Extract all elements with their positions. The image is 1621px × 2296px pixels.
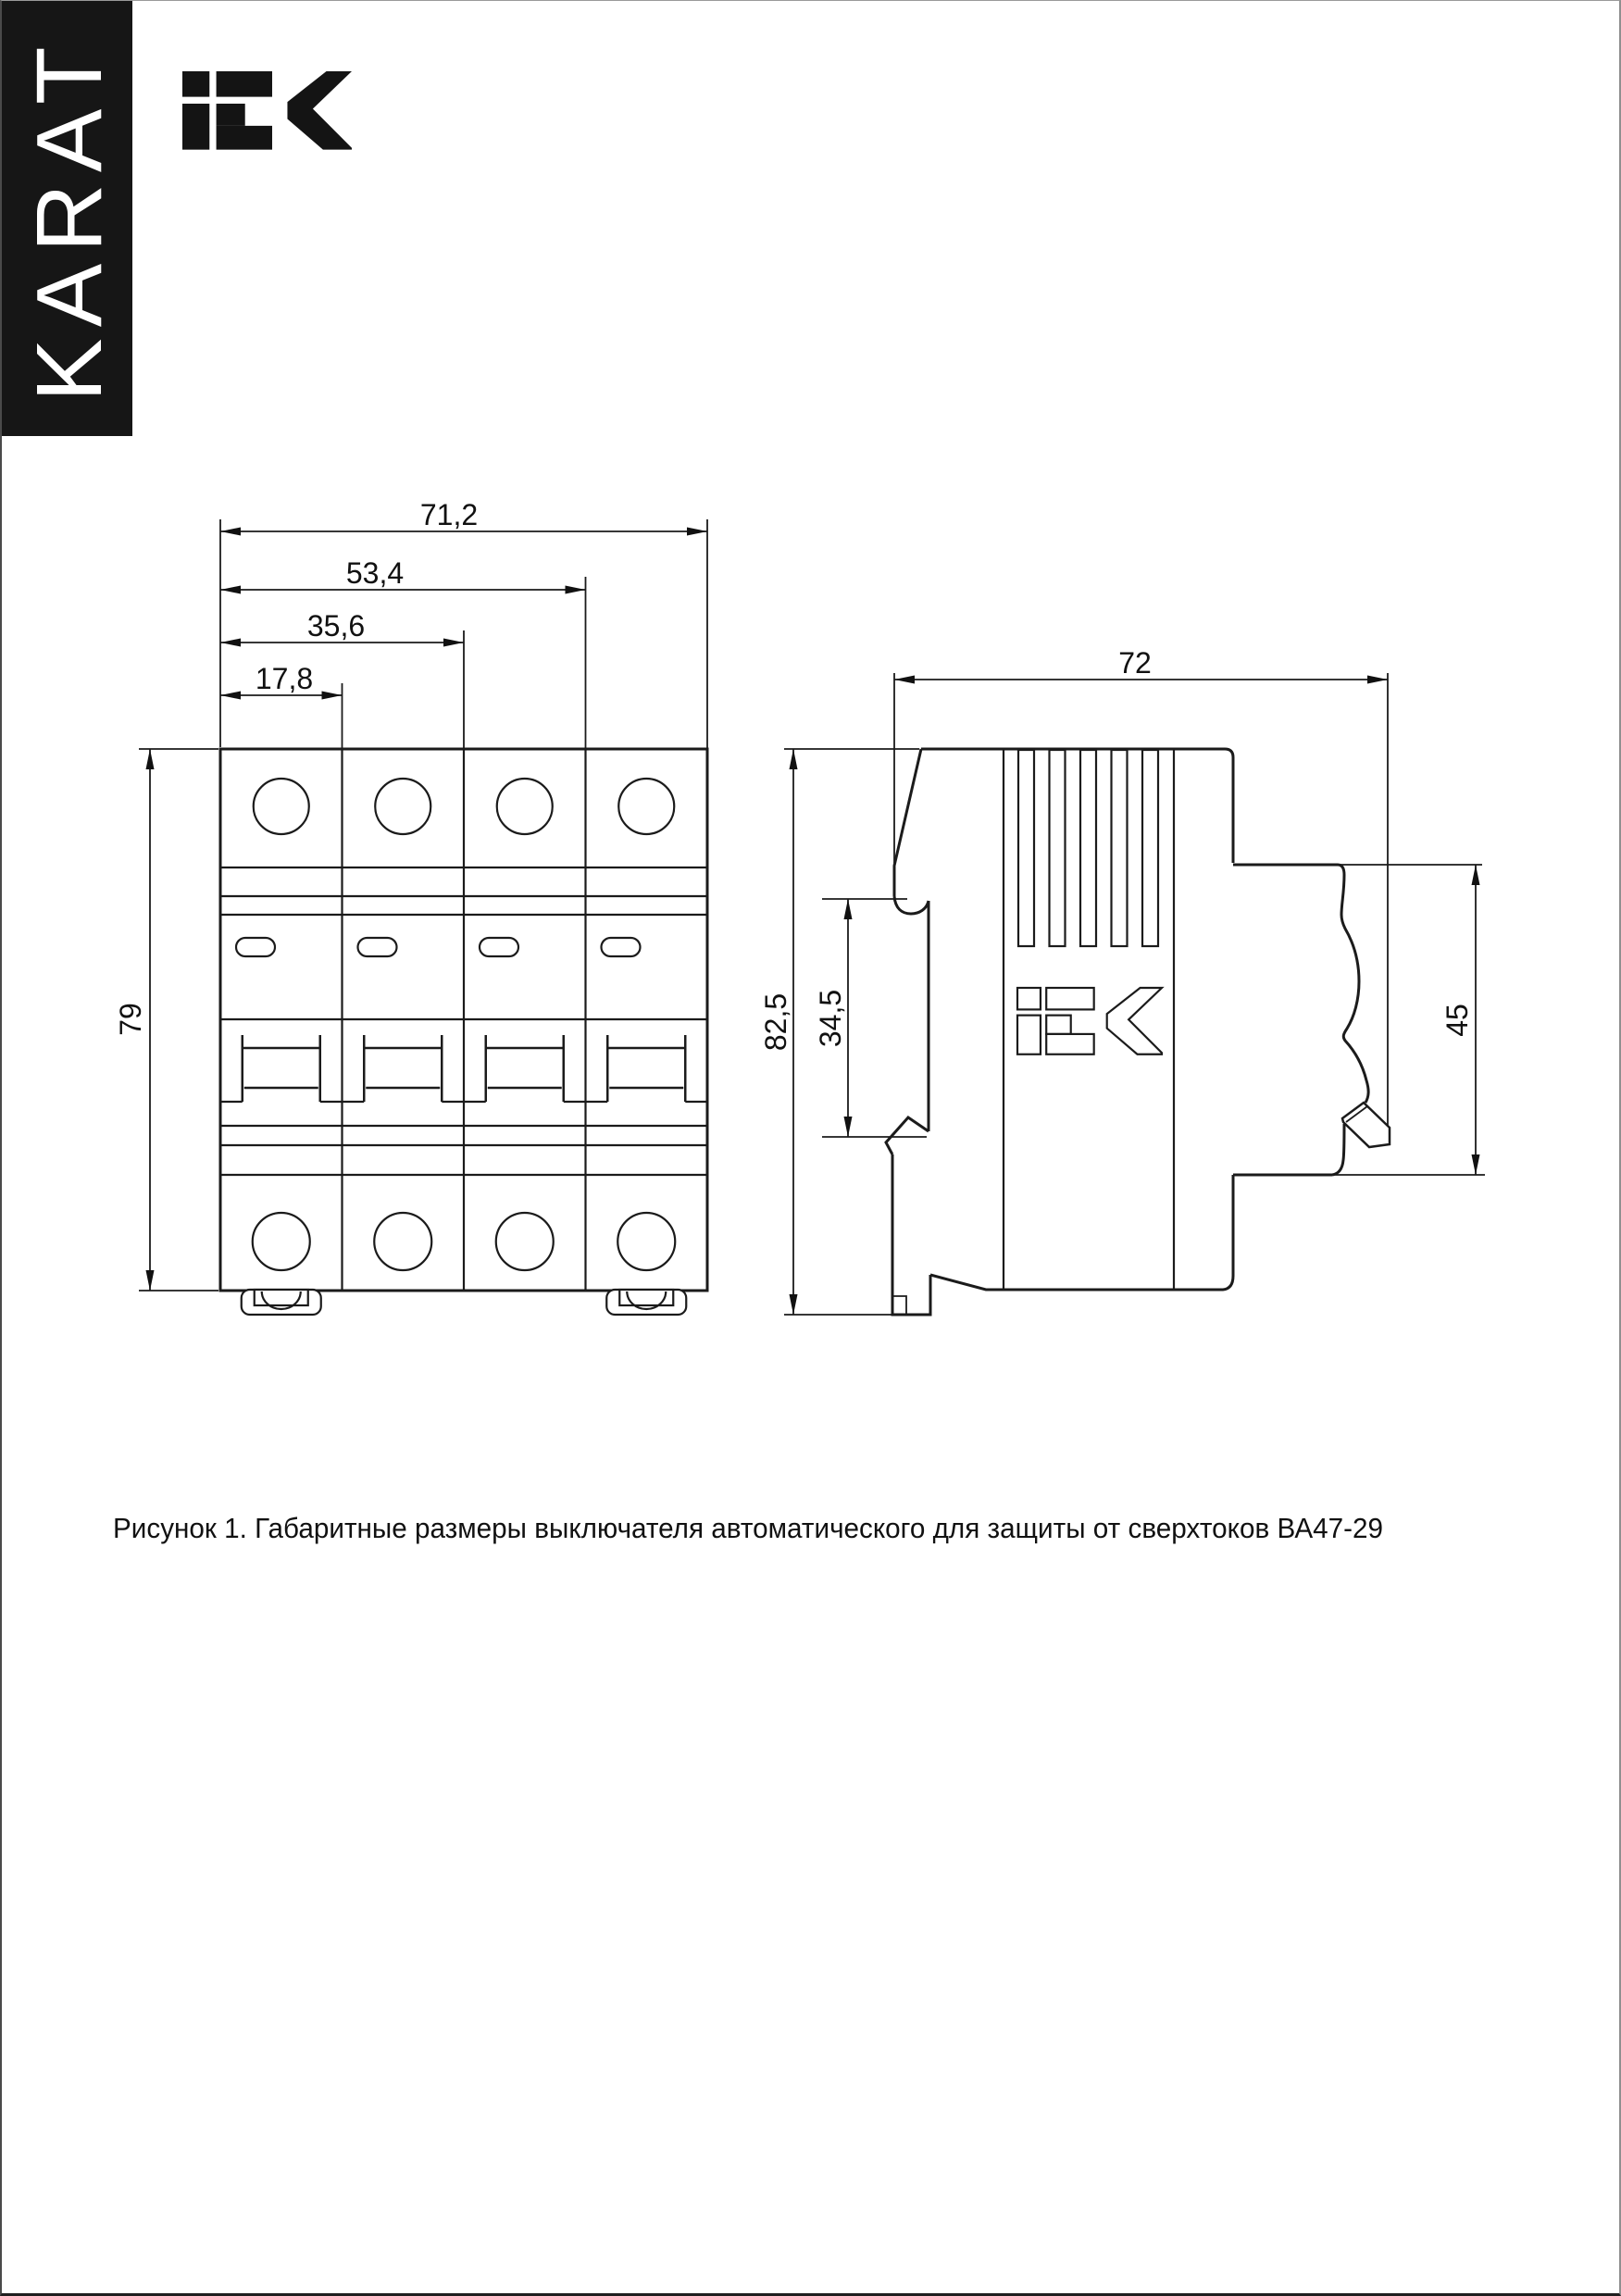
- dim-depth-label: 72: [1118, 646, 1152, 680]
- iek-logo-icon: [182, 71, 352, 150]
- iek-logo-e-bottom: [1046, 1034, 1093, 1054]
- iek-logo-i-stem: [182, 104, 209, 150]
- side-back-slant: [894, 749, 921, 896]
- iek-logo-i-stem: [1017, 1016, 1041, 1054]
- iek-logo-k: [287, 71, 352, 150]
- iek-logo-outline-icon: [1017, 988, 1162, 1054]
- dim-din-groove-label: 34,5: [814, 990, 847, 1047]
- side-bottom-edge: [930, 1175, 1233, 1290]
- side-din-foot: [892, 1154, 930, 1315]
- dim-height-label: 79: [114, 1003, 147, 1036]
- side-front-lower: [1332, 1124, 1344, 1175]
- side-view: [886, 749, 1390, 1315]
- dim-front-height-label: 45: [1440, 1004, 1474, 1037]
- catalog-page: KARAT: [0, 0, 1621, 2296]
- dim-height-clip-label: 82,5: [759, 993, 792, 1051]
- iek-logo-e-mid: [217, 104, 245, 126]
- side-front-profile: [1338, 865, 1368, 1103]
- iek-logo-e-top: [1046, 988, 1093, 1009]
- vent-slot: [1080, 750, 1096, 946]
- vent-slot: [1018, 750, 1034, 946]
- iek-logo-i-dot: [182, 71, 209, 97]
- iek-logo-e-bottom: [217, 126, 272, 150]
- dimensions-side-view: 72 82,5 34,5 45: [759, 646, 1485, 1315]
- side-top-edge: [921, 749, 1233, 863]
- brand-sidebar-label: KARAT: [18, 35, 121, 402]
- vent-slot: [1112, 750, 1128, 946]
- front-view: [220, 749, 707, 1315]
- iek-logo-e-top: [217, 71, 272, 97]
- dimension-drawing: KARAT: [2, 1, 1619, 2293]
- brand-sidebar: KARAT: [2, 1, 132, 436]
- dim-width-3p-label: 53,4: [346, 556, 404, 590]
- dim-width-1p-label: 17,8: [256, 662, 313, 695]
- side-toggle-lever: [1342, 1103, 1390, 1147]
- iek-logo-k: [1107, 988, 1162, 1054]
- side-din-foot-step: [892, 1296, 906, 1314]
- vent-slot: [1050, 750, 1066, 946]
- dim-width-total-label: 71,2: [420, 498, 478, 531]
- din-clip-front-left: [242, 1290, 321, 1315]
- dim-width-2p-label: 35,6: [307, 609, 365, 643]
- side-din-spring-tab: [886, 1117, 929, 1154]
- ventilation-slots: [1018, 750, 1158, 946]
- iek-logo-e-mid: [1046, 1016, 1071, 1034]
- iek-logo-i-dot: [1017, 988, 1041, 1009]
- din-clip-front-right: [606, 1290, 686, 1315]
- vent-slot: [1142, 750, 1158, 946]
- figure-caption: Рисунок 1. Габаритные размеры выключател…: [113, 1512, 1383, 1544]
